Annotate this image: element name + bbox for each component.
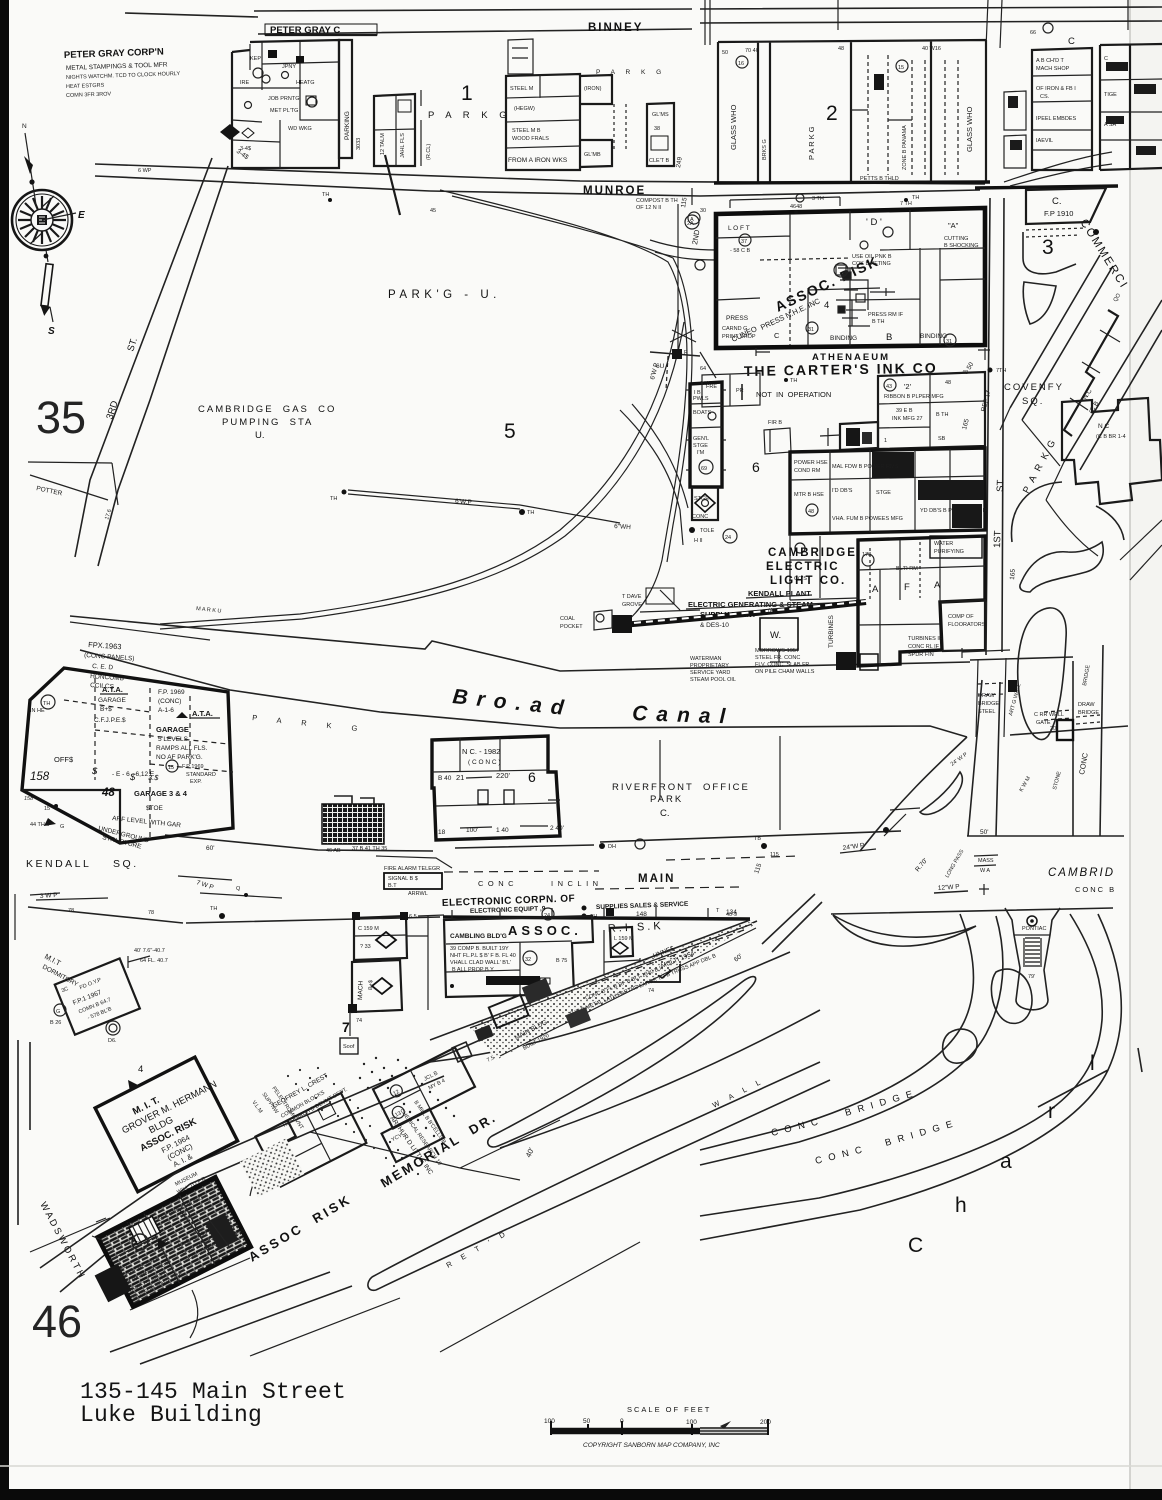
svg-text:F.P. 1969: F.P. 1969 [158, 689, 185, 696]
svg-text:A: A [690, 217, 694, 223]
svg-text:PRINT SHOP: PRINT SHOP [722, 334, 756, 340]
svg-text:OF 12 N II: OF 12 N II [636, 205, 662, 211]
svg-text:37: 37 [741, 239, 747, 245]
svg-text:POWER HSE: POWER HSE [794, 460, 828, 466]
svg-text:OF IRON & FB I: OF IRON & FB I [1036, 86, 1076, 92]
svg-text:GARAGE: GARAGE [156, 725, 189, 734]
svg-text:74: 74 [648, 988, 654, 994]
svg-text:PETTS B THLD: PETTS B THLD [860, 176, 899, 182]
svg-text:COMP OF: COMP OF [948, 614, 974, 620]
svg-text:RAMPS ALL FLS.: RAMPS ALL FLS. [156, 745, 208, 752]
svg-text:(CONC): (CONC) [158, 698, 181, 705]
svg-text:A.T.A.: A.T.A. [192, 709, 213, 718]
svg-text:15: 15 [44, 806, 50, 812]
svg-text:BRIDGE: BRIDGE [1078, 710, 1099, 716]
svg-text:B 75: B 75 [556, 958, 567, 964]
svg-text:L 159 M: L 159 M [614, 936, 634, 942]
svg-text:CUTTING: CUTTING [944, 236, 968, 242]
svg-text:MUNROE: MUNROE [583, 185, 646, 197]
svg-text:CAMBLING BLD'G: CAMBLING BLD'G [450, 933, 507, 940]
svg-text:LIGHT CO.: LIGHT CO. [770, 575, 846, 587]
svg-text:A B CH'D T: A B CH'D T [1036, 58, 1064, 64]
svg-text:TB: TB [754, 836, 761, 842]
svg-text:48: 48 [808, 509, 814, 515]
svg-text:69: 69 [701, 466, 707, 472]
svg-text:115: 115 [770, 852, 779, 858]
svg-text:STGE: STGE [694, 496, 709, 502]
svg-text:SQ.: SQ. [1022, 396, 1044, 407]
svg-text:CAMBRID: CAMBRID [1048, 867, 1115, 879]
svg-text:r: r [1048, 1100, 1055, 1123]
svg-text:BINNEY: BINNEY [588, 22, 643, 34]
svg-text:FLV. CONC. SLAB FR: FLV. CONC. SLAB FR [755, 662, 809, 668]
svg-text:TURBINES: TURBINES [828, 614, 835, 648]
svg-text:WATERMAN: WATERMAN [690, 656, 721, 662]
svg-text:JAHL FLS: JAHL FLS [400, 133, 406, 158]
svg-text:46: 46 [32, 1296, 82, 1347]
svg-text:TH: TH [527, 510, 534, 516]
svg-text:T DAVE: T DAVE [622, 594, 642, 600]
svg-text:P A R K G: P A R K G [807, 126, 816, 160]
svg-text:B+$: B+$ [100, 706, 112, 713]
svg-text:37 B 41 TH 35: 37 B 41 TH 35 [352, 846, 387, 852]
svg-text:50: 50 [583, 1418, 591, 1425]
svg-text:? 33: ? 33 [360, 944, 371, 950]
svg-text:46 AB: 46 AB [326, 848, 341, 854]
svg-text:158: 158 [24, 796, 34, 802]
svg-text:ST: ST [995, 479, 1006, 492]
svg-text:GL'MS: GL'MS [652, 112, 669, 118]
svg-text:PURIFYING: PURIFYING [934, 549, 964, 555]
svg-text:I'D DB'S: I'D DB'S [832, 488, 853, 494]
svg-text:STEAM POOL OIL: STEAM POOL OIL [690, 677, 736, 683]
svg-text:7: 7 [342, 1019, 350, 1035]
svg-text:32: 32 [525, 957, 531, 963]
svg-text:1D: 1D [126, 1222, 133, 1228]
svg-text:N C: N C [1098, 423, 1110, 430]
svg-text:66: 66 [1030, 30, 1036, 36]
svg-text:2 40': 2 40' [550, 825, 564, 832]
svg-text:35: 35 [36, 392, 86, 443]
svg-text:VHALL CLAD WALL' B'L': VHALL CLAD WALL' B'L' [450, 960, 511, 966]
svg-text:TH: TH [322, 192, 329, 198]
svg-text:MASS: MASS [978, 858, 994, 864]
svg-text:PWLS: PWLS [693, 396, 709, 402]
svg-text:MORROWS-1957: MORROWS-1957 [755, 648, 799, 654]
svg-text:TH: TH [912, 195, 919, 201]
svg-text:39 E B: 39 E B [896, 408, 913, 414]
svg-text:PRESS RM IF: PRESS RM IF [868, 312, 904, 318]
svg-text:TURBINES IF: TURBINES IF [908, 636, 943, 642]
svg-text:6U: 6U [656, 363, 665, 370]
svg-text:38: 38 [654, 126, 660, 132]
svg-text:CONC RL IF: CONC RL IF [908, 644, 940, 650]
svg-text:STGE: STGE [876, 490, 891, 496]
svg-text:B 40: B 40 [438, 775, 452, 782]
svg-text:Soof: Soof [343, 1044, 355, 1050]
svg-text:F.P 1910: F.P 1910 [1044, 209, 1073, 218]
svg-text:NO AF PARK'G.: NO AF PARK'G. [156, 754, 203, 761]
svg-text:G: G [56, 1009, 60, 1015]
svg-text:STANDARD: STANDARD [186, 772, 216, 778]
svg-text:RIBBON B PLPER MFG: RIBBON B PLPER MFG [884, 394, 944, 400]
svg-text:6: 6 [752, 459, 760, 475]
svg-text:SB: SB [938, 436, 946, 442]
svg-text:GLASS WHO: GLASS WHO [965, 106, 974, 152]
svg-text:74: 74 [356, 1018, 362, 1024]
svg-text:3: 3 [1042, 236, 1054, 259]
svg-text:(C B BR 1-4: (C B BR 1-4 [1096, 434, 1126, 440]
svg-text:ARRWL: ARRWL [408, 891, 428, 897]
svg-text:6 WP: 6 WP [138, 168, 152, 174]
svg-text:SIGNAL B $: SIGNAL B $ [388, 876, 418, 882]
svg-text:1 40: 1 40 [496, 827, 509, 834]
svg-text:(R.CL): (R.CL) [426, 144, 432, 160]
svg-text:EY: EY [136, 1241, 144, 1247]
svg-text:COPYRIGHT SANBORN MAP COMPA: COPYRIGHT SANBORN MAP COMPANY, INC [583, 1442, 720, 1449]
svg-text:C.: C. [1052, 196, 1062, 207]
svg-text:CAMBRIDGE GAS CO: CAMBRIDGE GAS CO [198, 404, 336, 415]
svg-text:BL'R RM: BL'R RM [896, 566, 918, 572]
svg-text:40-9: 40-9 [726, 912, 737, 918]
svg-text:RIVERFRONT OFFICE: RIVERFRONT OFFICE [612, 782, 750, 793]
svg-text:21: 21 [456, 773, 464, 782]
svg-text:FROM A IRON WKS: FROM A IRON WKS [508, 157, 568, 164]
svg-text:IAEVIL: IAEVIL [1036, 138, 1053, 144]
svg-text:C.F.J.P.E.$: C.F.J.P.E.$ [94, 717, 126, 724]
svg-text:MAL FDW B POWER RMS: MAL FDW B POWER RMS [832, 464, 899, 470]
svg-text:COMPOST B TH: COMPOST B TH [636, 198, 678, 204]
svg-text:VHA. FUM B POWEES MFG: VHA. FUM B POWEES MFG [832, 516, 903, 522]
svg-text:GARAGE: GARAGE [98, 697, 126, 704]
svg-text:3 TH: 3 TH [812, 196, 824, 202]
svg-text:ZONE B PANAMA: ZONE B PANAMA [902, 125, 908, 170]
svg-text:STEEL M: STEEL M [510, 86, 534, 92]
svg-text:18: 18 [438, 829, 446, 836]
svg-text:CS.: CS. [1040, 94, 1050, 100]
svg-text:60': 60' [206, 845, 214, 852]
svg-text:B.T: B.T [388, 883, 397, 889]
svg-text:43: 43 [886, 384, 892, 390]
svg-text:IPEEL EMBDES: IPEEL EMBDES [1036, 116, 1076, 122]
svg-text:STEEL M B: STEEL M B [512, 128, 541, 134]
svg-text:78: 78 [68, 908, 74, 914]
svg-text:BRIDGE: BRIDGE [978, 701, 999, 707]
svg-text:F: F [904, 582, 910, 593]
svg-text:BINDING: BINDING [920, 333, 947, 340]
svg-text:PR: PR [736, 388, 744, 394]
svg-text:200: 200 [760, 1419, 771, 1426]
svg-text:JPNY: JPNY [282, 64, 296, 70]
svg-text:148: 148 [636, 911, 647, 918]
svg-text:50': 50' [980, 829, 988, 836]
svg-text:6"WH: 6"WH [614, 523, 632, 531]
svg-text:100: 100 [544, 1418, 555, 1425]
svg-text:A: A [872, 584, 879, 595]
svg-text:FLOORATORS: FLOORATORS [948, 622, 986, 628]
svg-text:3033: 3033 [356, 138, 362, 150]
svg-text:2: 2 [826, 102, 838, 125]
svg-text:C: C [908, 1234, 923, 1257]
svg-text:MET PL'TG: MET PL'TG [270, 108, 298, 114]
svg-text:I'M: I'M [697, 450, 705, 456]
svg-text:MTR B HSE: MTR B HSE [794, 492, 824, 498]
svg-text:STEEL: STEEL [978, 709, 995, 715]
svg-text:1: 1 [461, 82, 473, 105]
svg-text:P A R K G: P A R K G [428, 110, 511, 121]
svg-text:B: B [886, 332, 892, 343]
svg-text:D6.: D6. [108, 1038, 117, 1044]
svg-text:B SHOCKING: B SHOCKING [944, 243, 979, 249]
svg-text:$: $ [91, 766, 98, 777]
svg-text:DRAW: DRAW [978, 693, 995, 699]
svg-text:C: C [1068, 36, 1075, 47]
svg-text:40 W16: 40 W16 [922, 46, 941, 52]
svg-text:OFF$: OFF$ [54, 755, 74, 764]
svg-text:POCKET: POCKET [560, 624, 583, 630]
svg-text:IN HE: IN HE [30, 708, 45, 714]
svg-text:BINDING: BINDING [830, 335, 857, 342]
svg-text:NOT IN OPERATION: NOT IN OPERATION [756, 390, 831, 399]
svg-text:MAIN: MAIN [638, 873, 675, 885]
svg-text:COVENFY: COVENFY [1004, 382, 1064, 393]
svg-text:STEEL FR. CONC: STEEL FR. CONC [755, 655, 800, 661]
svg-text:24: 24 [725, 535, 731, 541]
svg-text:SERVICE YARD: SERVICE YARD [690, 670, 730, 676]
svg-text:WATER: WATER [934, 541, 953, 547]
svg-text:C. E. D: C. E. D [92, 663, 114, 671]
svg-text:48: 48 [101, 787, 115, 799]
svg-text:"A": "A" [948, 221, 959, 230]
svg-text:L O F T: L O F T [728, 225, 750, 232]
svg-text:7TH: 7TH [996, 368, 1006, 374]
svg-text:IRE: IRE [240, 80, 250, 86]
svg-text:JOB PRNTG: JOB PRNTG [268, 96, 299, 102]
svg-text:PARK: PARK [650, 794, 683, 805]
svg-text:GATE: GATE [1036, 720, 1051, 726]
svg-text:G: G [60, 824, 64, 830]
svg-text:4648: 4648 [790, 204, 802, 210]
svg-text:165: 165 [1009, 568, 1017, 580]
svg-text:B TH: B TH [872, 319, 884, 325]
svg-text:50: 50 [722, 50, 728, 56]
svg-text:(IRON): (IRON) [584, 86, 602, 92]
svg-text:THE CARTER'S INK CO: THE CARTER'S INK CO [744, 360, 938, 379]
svg-text:H II: H II [694, 538, 703, 544]
svg-text:F.P 1969: F.P 1969 [182, 764, 204, 770]
svg-text:4: 4 [824, 300, 829, 311]
svg-text:TH: TH [43, 701, 50, 707]
svg-text:220': 220' [496, 771, 511, 780]
svg-text:l: l [1090, 1052, 1095, 1075]
svg-text:CONC INCLIN: CONC INCLIN [478, 879, 603, 888]
svg-text:TH: TH [210, 906, 217, 912]
svg-text:( C O N C ): ( C O N C ) [468, 759, 501, 766]
svg-text:a: a [1000, 1150, 1012, 1173]
svg-text:ELECTRIC: ELECTRIC [766, 561, 840, 573]
svg-text:GL'MB: GL'MB [584, 152, 601, 158]
svg-text:31: 31 [808, 327, 814, 333]
svg-text:'2': '2' [904, 382, 912, 391]
svg-text:Luke Building: Luke Building [80, 1402, 262, 1428]
svg-text:PONTIAC: PONTIAC [1022, 926, 1046, 932]
svg-text:PARK'G - U.: PARK'G - U. [388, 289, 501, 301]
svg-text:5: 5 [504, 420, 516, 443]
svg-text:78: 78 [148, 910, 154, 916]
svg-text:15: 15 [168, 765, 174, 771]
svg-text:MACH SHOP: MACH SHOP [1036, 66, 1070, 72]
svg-text:W A: W A [980, 868, 990, 874]
svg-text:39 COMP B. BUILT 19Y: 39 COMP B. BUILT 19Y [450, 946, 509, 952]
svg-text:3 W P: 3 W P [40, 892, 58, 900]
svg-text:KENDALL SQ.: KENDALL SQ. [26, 858, 139, 870]
svg-text:GARAGE 3 & 4: GARAGE 3 & 4 [134, 789, 188, 798]
svg-text:A.T.A.: A.T.A. [102, 685, 123, 694]
svg-text:48: 48 [838, 46, 844, 52]
svg-text:CARND G: CARND G [722, 326, 747, 332]
svg-text:S: S [48, 326, 55, 337]
svg-text:6'W.P: 6'W.P [455, 498, 472, 506]
svg-text:PUMPING STA: PUMPING STA [222, 417, 313, 428]
svg-text:12 TALM: 12 TALM [380, 133, 386, 155]
svg-text:4: 4 [138, 1064, 143, 1075]
svg-text:3.$: 3.$ [148, 773, 159, 782]
svg-text:SPDR FIN: SPDR FIN [908, 652, 934, 658]
svg-text:16: 16 [738, 61, 744, 67]
svg-text:(A): (A) [768, 608, 776, 614]
svg-text:N: N [22, 123, 27, 130]
svg-text:B 26: B 26 [50, 1020, 61, 1026]
svg-text:45: 45 [430, 208, 436, 214]
svg-text:GEN'L: GEN'L [693, 436, 709, 442]
svg-text:TH: TH [330, 496, 337, 502]
svg-text:P A R K G: P A R K G [596, 69, 666, 76]
svg-text:C: C [774, 331, 780, 340]
svg-text:31: 31 [946, 339, 952, 345]
svg-text:FRE: FRE [706, 384, 717, 390]
svg-text:STGE: STGE [693, 443, 708, 449]
svg-text:PRESS: PRESS [726, 315, 749, 322]
svg-text:$TOE: $TOE [146, 805, 164, 812]
svg-text:WOOD FRALS: WOOD FRALS [512, 136, 549, 142]
svg-text:MACH: MACH [357, 980, 365, 1000]
svg-text:CONC: CONC [692, 514, 708, 520]
svg-text:0: 0 [620, 1418, 624, 1425]
svg-text:1ST: 1ST [992, 530, 1004, 548]
svg-text:FIR B: FIR B [768, 420, 782, 426]
svg-text:C RR WELL: C RR WELL [1034, 712, 1064, 718]
svg-text:A: A [934, 580, 941, 591]
svg-text:158: 158 [30, 771, 50, 783]
svg-text:FIRE ALARM TELEGR: FIRE ALARM TELEGR [384, 866, 440, 872]
svg-text:ASSOC.: ASSOC. [508, 923, 582, 938]
svg-text:BRKS G: BRKS G [762, 139, 768, 160]
svg-text:$: $ [129, 772, 136, 783]
svg-text:INK MFG 27: INK MFG 27 [892, 416, 923, 422]
svg-text:TOLE: TOLE [700, 528, 715, 534]
svg-text:COAL: COAL [560, 616, 575, 622]
svg-text:DRAW: DRAW [1078, 702, 1095, 708]
svg-text:30: 30 [700, 208, 706, 214]
svg-text:CLE'T B: CLE'T B [649, 158, 670, 164]
svg-text:EXP.: EXP. [190, 779, 202, 785]
svg-text:WD WKG: WD WKG [288, 126, 312, 132]
svg-text:79': 79' [1028, 974, 1035, 980]
svg-text:GLASS WHO: GLASS WHO [729, 104, 738, 150]
svg-text:Q: Q [236, 886, 241, 892]
svg-text:40' 7.6"-40.7: 40' 7.6"-40.7 [134, 948, 165, 954]
svg-text:E: E [78, 210, 85, 221]
svg-text:' D ': ' D ' [866, 217, 882, 228]
svg-text:15: 15 [898, 65, 904, 71]
svg-text:- 58 C B: - 58 C B [730, 248, 751, 254]
svg-text:U.: U. [255, 430, 265, 441]
svg-text:NHT FL.P.L $ B' F B. FL 40: NHT FL.P.L $ B' F B. FL 40 [450, 953, 516, 959]
svg-text:DH: DH [608, 844, 616, 850]
svg-text:5 LEVELS: 5 LEVELS [158, 736, 189, 743]
svg-text:h: h [955, 1194, 967, 1217]
svg-text:PROPRIETARY: PROPRIETARY [690, 663, 729, 669]
svg-text:HEATG: HEATG [296, 80, 315, 86]
svg-text:B ALL PROP B Y.: B ALL PROP B Y. [452, 967, 495, 973]
svg-text:100: 100 [686, 1419, 697, 1426]
svg-text:TIGE: TIGE [1104, 92, 1117, 98]
svg-text:N C. - 1982: N C. - 1982 [462, 747, 500, 756]
svg-text:70 40: 70 40 [745, 48, 759, 54]
svg-text:B TH: B TH [936, 412, 948, 418]
svg-text:GROVE: GROVE [622, 602, 642, 608]
svg-text:1: 1 [884, 438, 887, 444]
svg-text:ON PILE CHAM WALLS: ON PILE CHAM WALLS [755, 669, 815, 675]
svg-text:64: 64 [700, 366, 706, 372]
svg-text:KEP: KEP [250, 56, 261, 62]
svg-text:TH: TH [790, 378, 797, 384]
svg-text:64 FL. 40.7: 64 FL. 40.7 [140, 958, 168, 964]
svg-text:6: 6 [528, 769, 536, 785]
svg-text:48: 48 [945, 380, 951, 386]
svg-text:CONC B: CONC B [1075, 885, 1116, 894]
svg-text:& DES-10: & DES-10 [700, 622, 729, 629]
svg-text:Canal: Canal [632, 702, 735, 729]
svg-text:C: C [1104, 56, 1108, 62]
svg-text:A-1-6: A-1-6 [158, 707, 174, 714]
svg-text:SCALE OF FEET: SCALE OF FEET [627, 1405, 711, 1414]
svg-text:W.: W. [770, 630, 781, 641]
svg-text:C 159 M: C 159 M [358, 926, 379, 932]
svg-text:PARKING: PARKING [344, 111, 351, 140]
svg-text:CAMBRIDGE: CAMBRIDGE [768, 547, 857, 559]
svg-text:COND RM: COND RM [794, 468, 821, 474]
svg-text:7 TH: 7 TH [900, 201, 912, 207]
svg-text:C.: C. [660, 808, 670, 819]
svg-text:(HEGW): (HEGW) [514, 106, 535, 112]
